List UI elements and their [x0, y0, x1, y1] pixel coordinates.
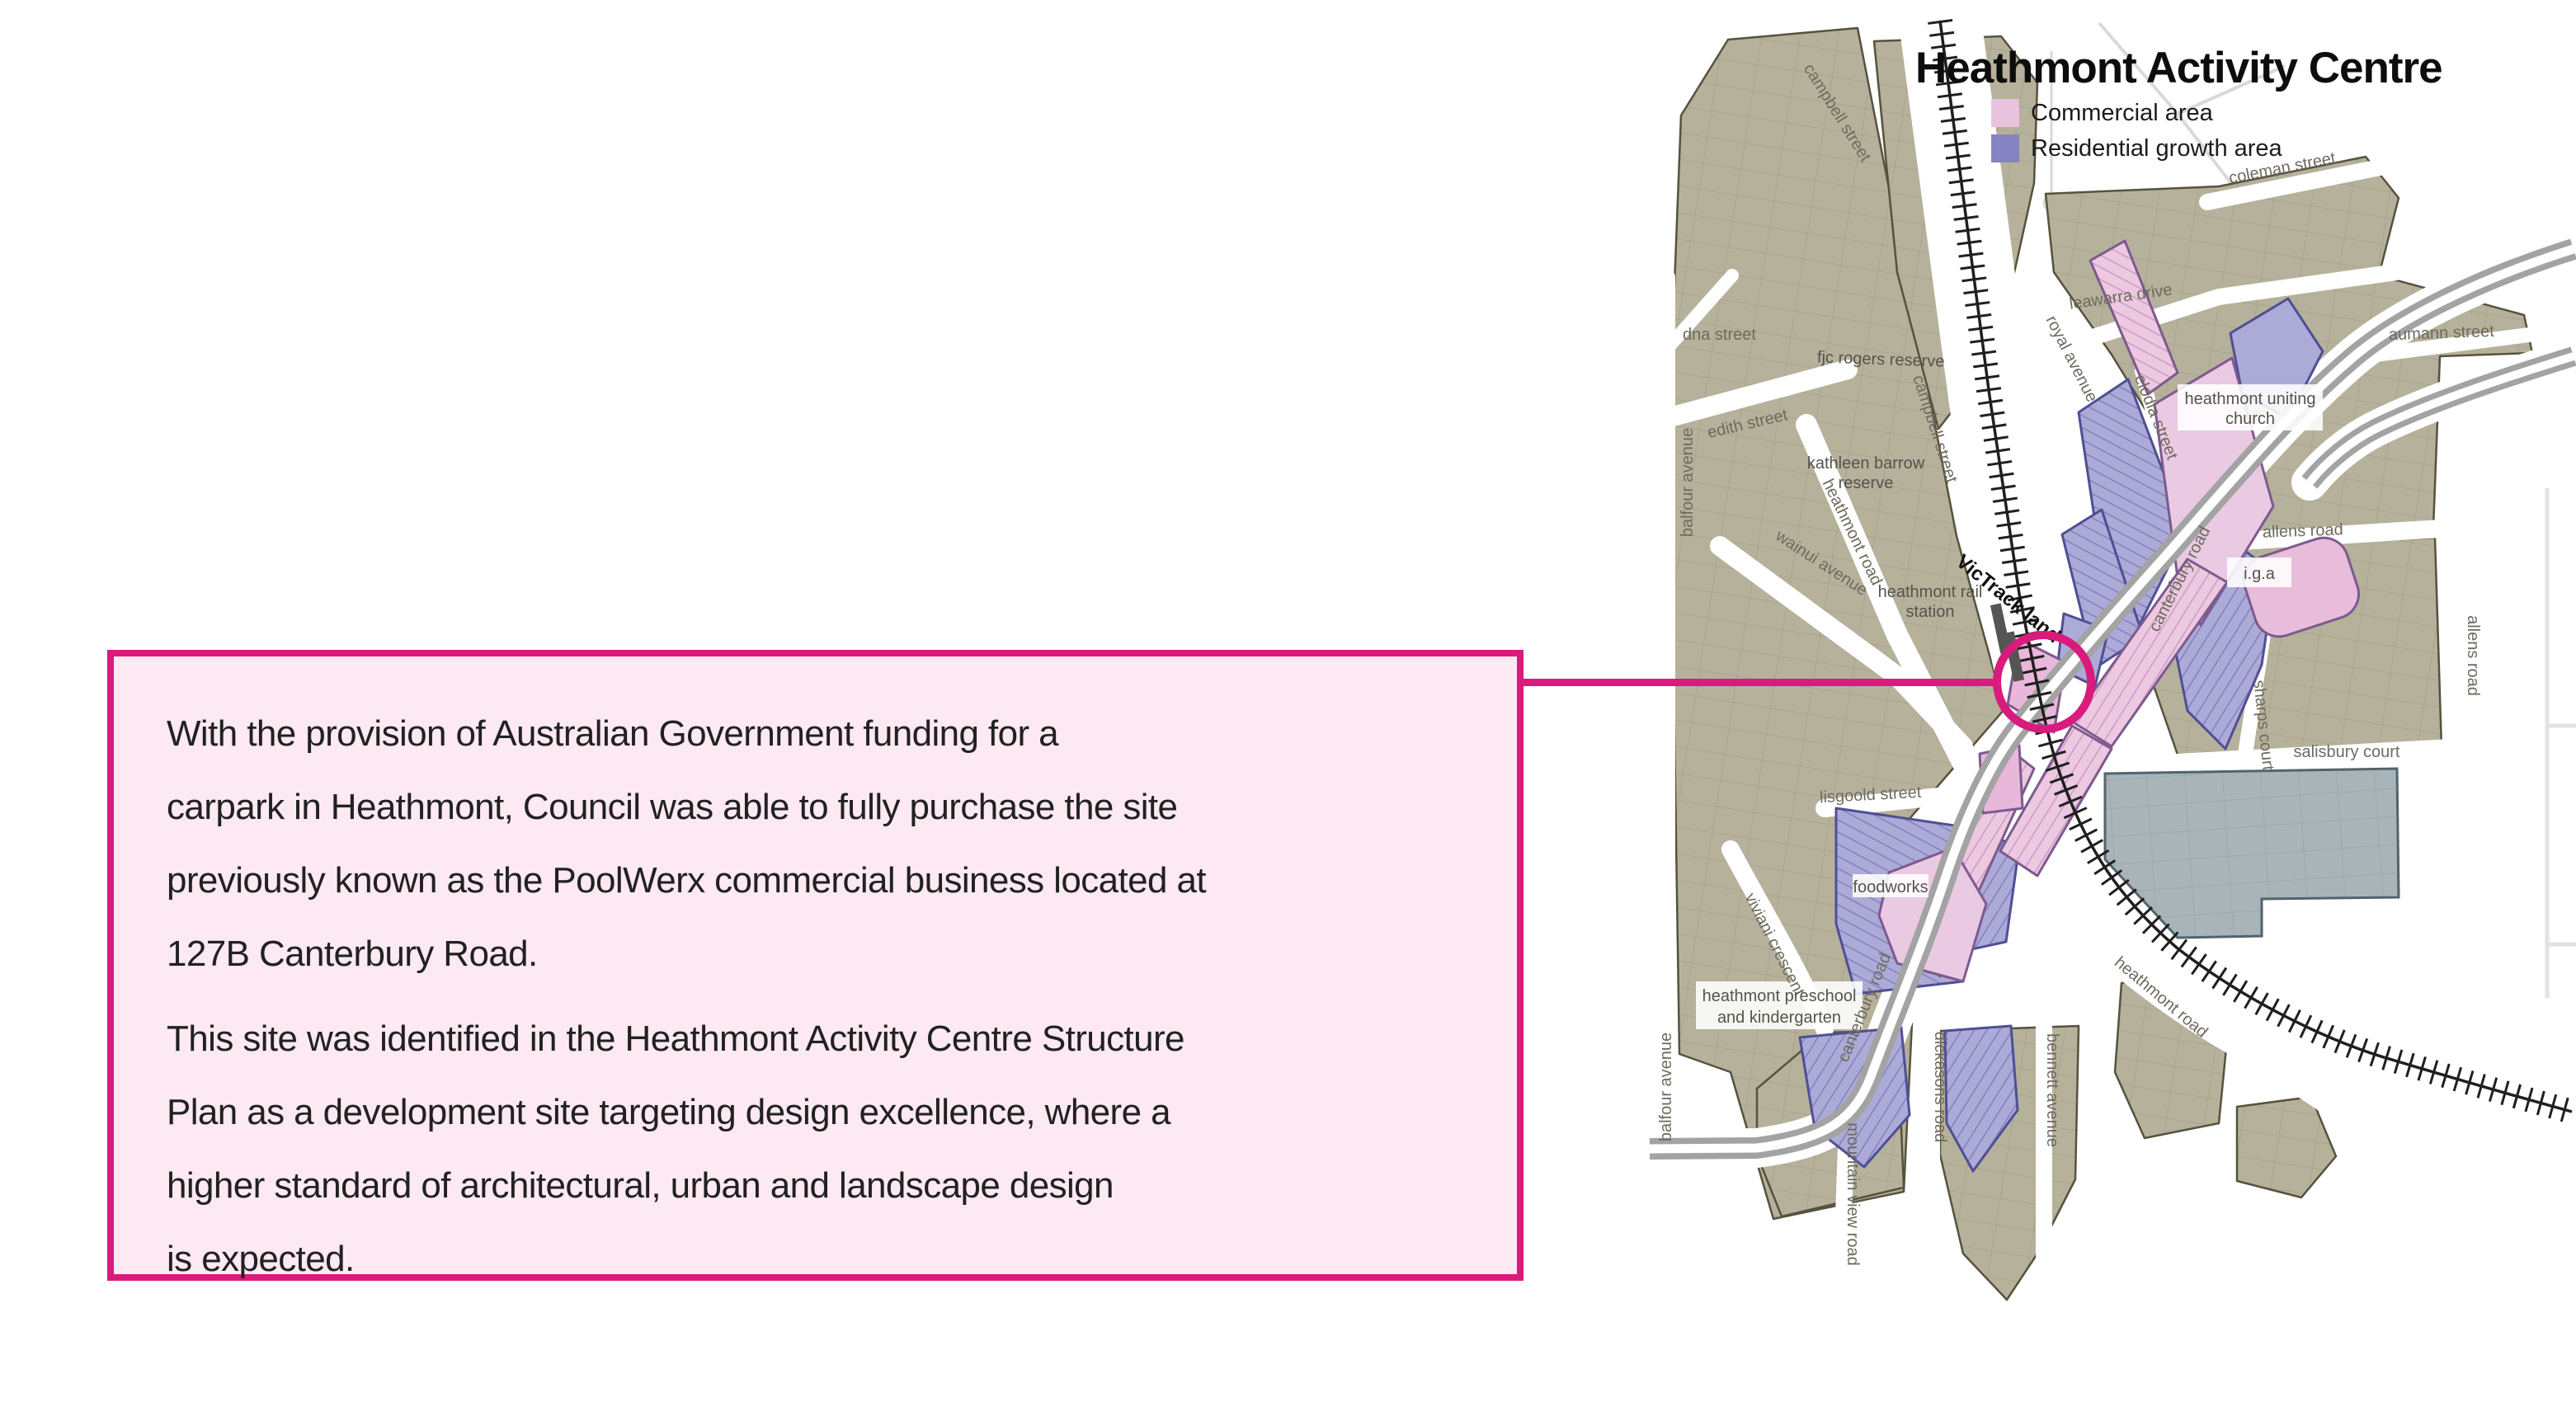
commercial-swatch-icon: [1991, 99, 2019, 127]
landmark-label-iga: i.g.a: [2244, 565, 2276, 583]
street-label: bennett avenue: [2043, 1033, 2061, 1147]
map-title: Heathmont Activity Centre: [1915, 43, 2442, 93]
callout-paragraph-2: This site was identified in the Heathmon…: [167, 1002, 1467, 1296]
street-label: allens road: [2464, 615, 2482, 696]
report-page: dna street balfour avenue balfour avenue…: [0, 0, 2576, 1402]
street-label: balfour avenue: [1657, 1033, 1675, 1141]
landmark-label-preschool: and kindergarten: [1717, 1009, 1841, 1027]
legend-label-residential: Residential growth area: [2031, 135, 2282, 162]
landmark-label-kathleen-barrow: reserve: [1839, 474, 1894, 492]
map-legend: Commercial area Residential growth area: [1991, 99, 2282, 170]
street-label: allens road: [2263, 520, 2344, 541]
street-label: dna street: [1683, 326, 1756, 344]
callout-connector-line: [1523, 679, 2000, 686]
zone-school: [2105, 769, 2399, 938]
callout-paragraph-1: With the provision of Australian Governm…: [167, 697, 1467, 990]
residential-swatch-icon: [1991, 134, 2019, 162]
street-label: aumann street: [2389, 322, 2495, 344]
legend-row-residential: Residential growth area: [1991, 134, 2282, 162]
street-label: mountain view road: [1844, 1122, 1862, 1265]
legend-row-commercial: Commercial area: [1991, 99, 2282, 127]
street-label: balfour avenue: [1679, 428, 1697, 537]
callout-box: With the provision of Australian Governm…: [107, 650, 1523, 1281]
landmark-label-preschool: heathmont preschool: [1702, 987, 1857, 1005]
landmark-label-rail-station: station: [1906, 603, 1955, 621]
landmark-label-uniting-church: church: [2225, 410, 2275, 428]
landmark-label-kathleen-barrow: kathleen barrow: [1807, 454, 1925, 473]
landmark-label-foodworks: foodworks: [1853, 878, 1928, 896]
legend-label-commercial: Commercial area: [2031, 100, 2213, 127]
street-label: dickasons road: [1931, 1032, 1949, 1143]
landmark-label-rail-station: heathmont rail: [1878, 583, 1983, 601]
street-label: salisbury court: [2294, 743, 2400, 761]
landmark-label-uniting-church: heathmont uniting: [2184, 390, 2315, 408]
